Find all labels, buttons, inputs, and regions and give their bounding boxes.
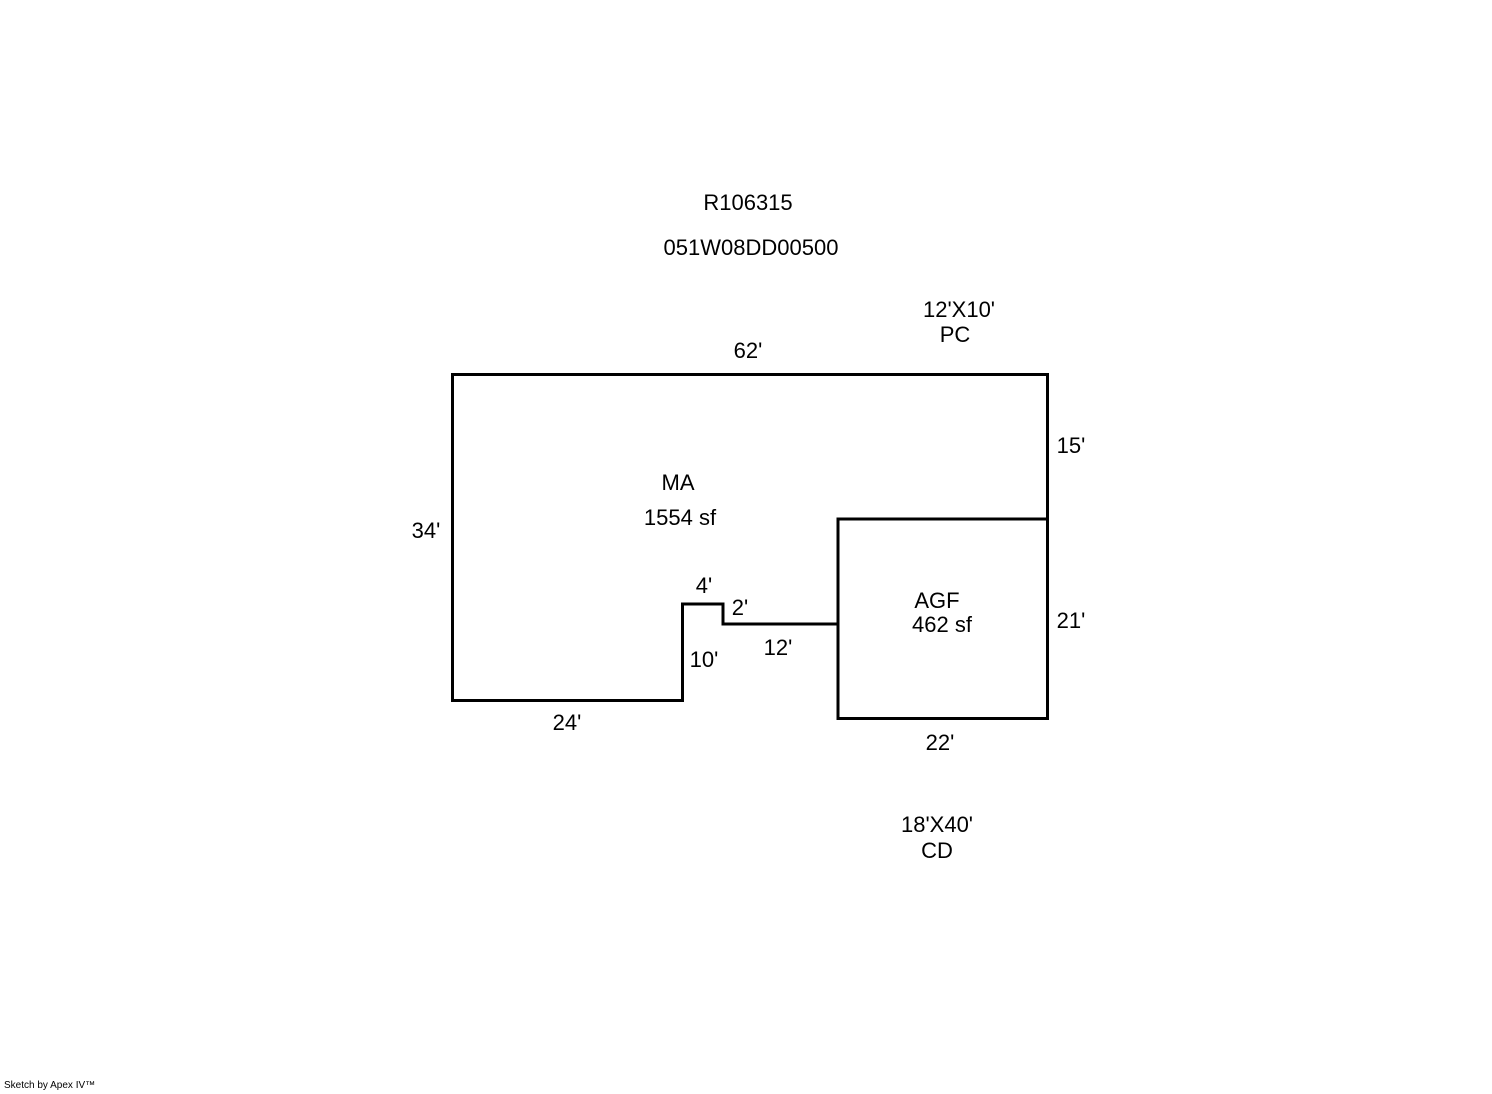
main-area-code-label: MA <box>662 471 695 495</box>
main-area-outline <box>453 375 1048 701</box>
dimension-inner-bottom-12ft: 12' <box>764 636 793 660</box>
dimension-notch-top-4ft: 4' <box>696 574 712 598</box>
pc-code-label: PC <box>940 323 971 347</box>
apex-watermark-label: Sketch by Apex IV™ <box>4 1080 95 1091</box>
parcel-number-label: 051W08DD00500 <box>664 236 839 260</box>
main-area-sqft-label: 1554 sf <box>644 506 716 530</box>
dimension-right-15ft: 15' <box>1057 434 1086 458</box>
dimension-top-62ft: 62' <box>734 339 763 363</box>
cd-size-label: 18'X40' <box>901 813 973 837</box>
dimension-notch-side-2ft: 2' <box>732 596 748 620</box>
dimension-bottom-24ft: 24' <box>553 711 582 735</box>
sketch-canvas: R106315 051W08DD00500 12'X10' PC 62' 15'… <box>0 0 1492 1094</box>
garage-sqft-label: 462 sf <box>912 613 972 637</box>
dimension-garage-right-21ft: 21' <box>1057 609 1086 633</box>
record-number-label: R106315 <box>703 191 792 215</box>
garage-code-label: AGF <box>914 589 959 613</box>
pc-size-label: 12'X10' <box>923 298 995 322</box>
dimension-left-34ft: 34' <box>412 519 441 543</box>
cd-code-label: CD <box>921 839 953 863</box>
dimension-notch-height-10ft: 10' <box>690 648 719 672</box>
floorplan-drawing <box>0 0 1492 1094</box>
dimension-garage-bottom-22ft: 22' <box>926 731 955 755</box>
